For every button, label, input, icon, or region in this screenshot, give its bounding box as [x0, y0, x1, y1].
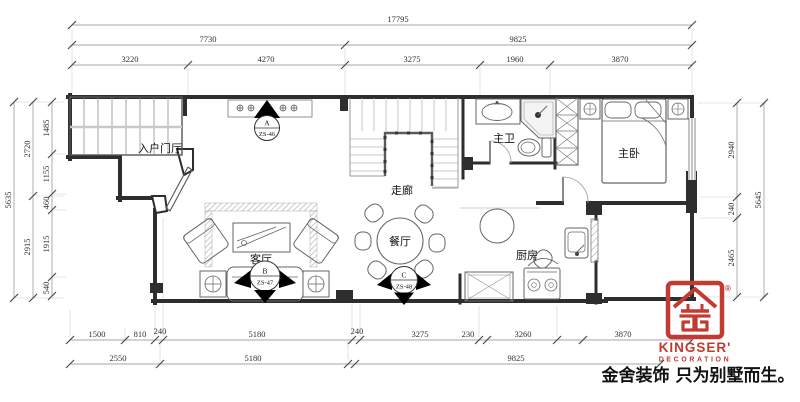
window [688, 118, 696, 180]
marker-letter: A [264, 119, 270, 128]
dim-label: 1155 [41, 166, 51, 183]
wardrobe [556, 98, 578, 165]
dim-label: 230 [462, 329, 475, 339]
bedroom-furniture [580, 99, 688, 183]
dim-label: 240 [351, 326, 364, 336]
kitchen-door [591, 219, 598, 262]
entry-door [152, 149, 193, 213]
stove [524, 258, 560, 299]
room-label-bedroom: 主卧 [618, 147, 640, 160]
kitchen-table [480, 209, 514, 243]
shower [521, 99, 556, 138]
marker-A: A ZS-46 [228, 100, 312, 141]
room-label-entry: 入户门厅 [138, 141, 182, 155]
dim-label: 5645 [753, 192, 763, 209]
dimension-lines [14, 25, 764, 364]
dim-label: 540 [41, 282, 51, 295]
kitchen-counter [465, 272, 513, 301]
room-label-corridor: 走廊 [391, 183, 413, 197]
dim-label: 17795 [387, 14, 408, 24]
registered-icon: ® [725, 284, 731, 293]
dim-label: 5180 [249, 329, 266, 339]
dim-label: 1485 [41, 120, 51, 137]
dim-label: 1500 [89, 329, 106, 339]
dim-label: 2465 [726, 250, 736, 267]
dim-label: 240 [154, 326, 167, 336]
dim-label: 810 [134, 329, 147, 339]
dimension-ticks [10, 21, 768, 368]
dim-label: 9825 [508, 353, 525, 363]
marker-letter: C [401, 271, 406, 280]
dim-label: 3220 [122, 54, 139, 64]
dim-label: 2550 [110, 353, 127, 363]
dim-label: 2940 [726, 142, 736, 159]
floorplan-page: 17795 7730 9825 3220 4270 3275 1960 3870… [0, 0, 800, 402]
dim-label: 1915 [41, 236, 51, 253]
marker-code: ZS-47 [257, 280, 274, 287]
toilet [518, 138, 551, 157]
dim-label: 460 [41, 197, 51, 210]
bathroom-fixtures [476, 99, 556, 157]
dim-label: 2915 [22, 239, 32, 256]
logo-brand-text: KINGSER' [659, 340, 732, 355]
nightstand-left [580, 99, 600, 119]
dim-label: 3260 [515, 329, 532, 339]
room-label-bath: 主卫 [493, 132, 515, 145]
floorplan-canvas: 17795 7730 9825 3220 4270 3275 1960 3870… [0, 0, 800, 402]
dim-label: 3275 [404, 54, 421, 64]
logo-sub-text: DECORATION [659, 357, 732, 364]
bedroom-door [563, 177, 588, 203]
dim-label: 4270 [258, 54, 275, 64]
sink [476, 99, 520, 124]
dim-label: 7730 [200, 34, 217, 44]
bed [602, 99, 666, 183]
marker-code: ZS-48 [396, 284, 412, 291]
kitchen-sink [565, 228, 588, 258]
central-staircase [350, 98, 458, 188]
logo-tagline: 金舍装饰 只为别墅而生。 [601, 365, 795, 386]
nightstand-right [668, 99, 688, 119]
side-table-left [200, 271, 226, 297]
side-table-right [303, 271, 329, 297]
room-label-dining: 餐厅 [389, 234, 411, 248]
tv-table [233, 223, 290, 252]
marker-code: ZS-46 [259, 131, 276, 138]
dim-label: 240 [726, 203, 736, 216]
logo-glyph [674, 289, 716, 330]
dim-label: 3275 [412, 329, 429, 339]
dim-label: 5180 [245, 353, 262, 363]
dim-label: 9825 [510, 34, 527, 44]
dim-label: 1960 [507, 54, 524, 64]
dim-label: 5635 [3, 192, 13, 209]
marker-letter: B [262, 267, 267, 276]
dim-label: 3870 [612, 54, 629, 64]
dim-label: 3870 [615, 329, 632, 339]
room-label-kitchen: 厨房 [516, 249, 538, 262]
dim-label: 2720 [22, 141, 32, 158]
